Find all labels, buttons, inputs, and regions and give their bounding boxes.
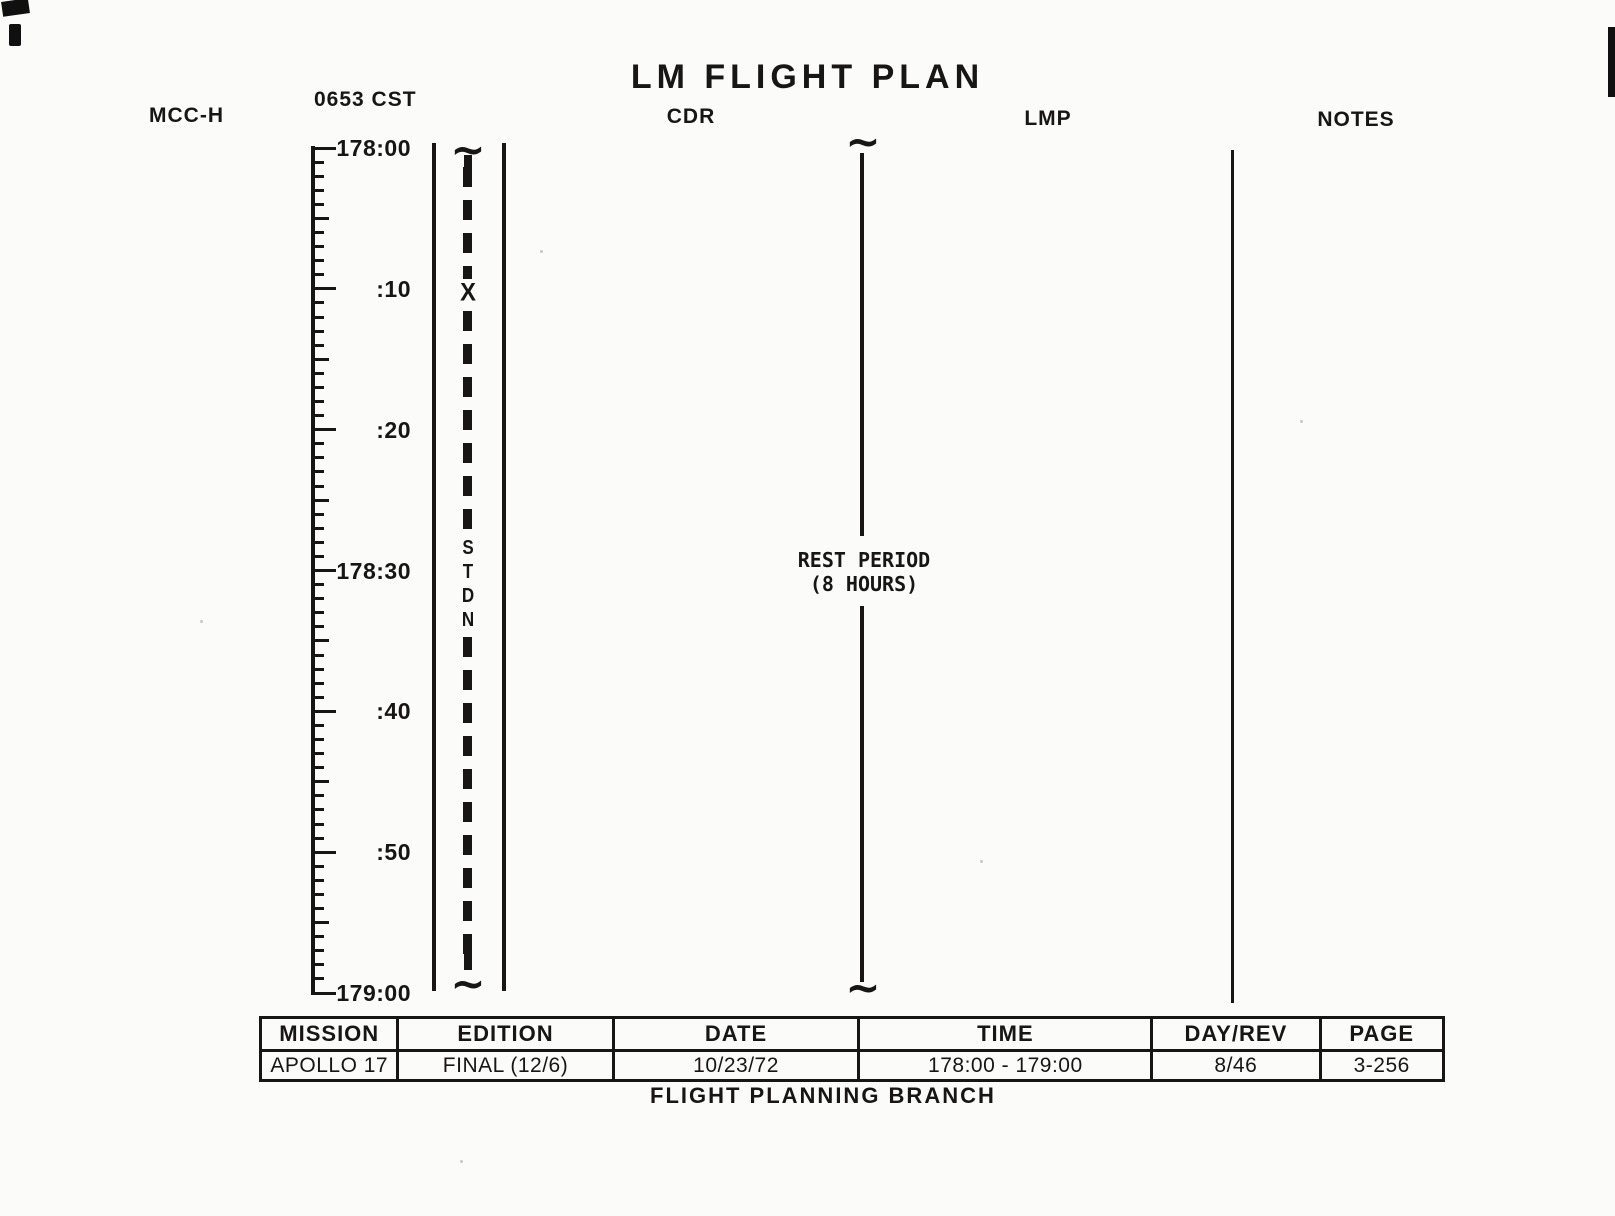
- time-tick: [313, 316, 324, 319]
- time-tick: [313, 330, 324, 333]
- time-tick: [313, 189, 324, 192]
- rest-period-line: [860, 606, 864, 982]
- time-tick: [313, 823, 324, 826]
- time-tick: [313, 738, 324, 741]
- time-tick: [313, 907, 324, 910]
- stdn-coverage-dashed-line: [463, 311, 472, 533]
- stdn-letter: N: [451, 608, 485, 632]
- time-tick: [313, 203, 324, 206]
- time-scale-label: :50: [308, 839, 411, 866]
- table-header-dayrev: DAY/REV: [1153, 1019, 1321, 1052]
- timescale-right-line: [432, 143, 436, 991]
- stdn-x-marker: X: [449, 279, 487, 308]
- cdr-column-line: [502, 143, 506, 991]
- stdn-letter: S: [451, 536, 485, 560]
- time-tick: [313, 541, 324, 544]
- stdn-coverage-dashed-line: [463, 167, 472, 279]
- time-scale-label: 178:30: [308, 558, 411, 585]
- rest-period-label: REST PERIOD (8 HOURS): [714, 549, 1014, 596]
- time-tick: [313, 935, 324, 938]
- time-tick: [313, 231, 324, 234]
- time-tick: [313, 682, 324, 685]
- continuation-squiggle-icon: ~: [833, 967, 893, 1009]
- stdn-coverage-dashed-line: [463, 637, 472, 959]
- time-tick: [313, 372, 324, 375]
- time-tick: [313, 668, 324, 671]
- lmp-column-header: LMP: [998, 107, 1098, 131]
- time-tick: [313, 513, 324, 516]
- time-scale-label: 179:00: [308, 980, 411, 1007]
- table-value-mission: APOLLO 17: [262, 1052, 399, 1079]
- time-tick: [313, 625, 324, 628]
- cst-time-label: 0653 CST: [314, 88, 417, 112]
- table-header-time: TIME: [860, 1019, 1153, 1052]
- time-tick: [313, 175, 324, 178]
- time-tick: [313, 245, 324, 248]
- squiggle-stub: [464, 155, 472, 169]
- time-tick: [313, 456, 324, 459]
- table-value-edition: FINAL (12/6): [399, 1052, 614, 1079]
- stdn-letter: T: [451, 560, 485, 584]
- time-tick: [313, 879, 324, 882]
- time-tick: [313, 344, 324, 347]
- time-tick: [313, 485, 324, 488]
- time-tick: [313, 259, 324, 262]
- lm-flight-plan-page: LM FLIGHT PLAN MCC-H 0653 CST CDR LMP NO…: [0, 0, 1615, 1216]
- rest-period-line: [860, 153, 864, 536]
- time-tick: [313, 654, 324, 657]
- scan-speck: [1300, 420, 1303, 423]
- table-header-edition: EDITION: [399, 1019, 614, 1052]
- time-tick: [313, 470, 324, 473]
- time-tick: [313, 499, 329, 502]
- table-value-time: 178:00 - 179:00: [860, 1052, 1153, 1079]
- mcc-h-label: MCC-H: [149, 104, 224, 128]
- time-tick: [313, 527, 324, 530]
- scan-speck: [200, 620, 203, 623]
- time-tick: [313, 949, 324, 952]
- time-scale-label: :40: [308, 698, 411, 725]
- table-header-page: PAGE: [1322, 1019, 1442, 1052]
- flight-planning-branch-caption: FLIGHT PLANNING BRANCH: [650, 1083, 996, 1109]
- scan-speck: [460, 1160, 463, 1163]
- time-tick: [313, 217, 329, 220]
- table-value-page: 3-256: [1322, 1052, 1442, 1079]
- scan-artifact: [1, 0, 30, 17]
- squiggle-stub: [464, 952, 472, 970]
- time-tick: [313, 766, 324, 769]
- time-tick: [313, 893, 324, 896]
- table-value-dayrev: 8/46: [1153, 1052, 1321, 1079]
- time-tick: [313, 597, 324, 600]
- page-title: LM FLIGHT PLAN: [0, 58, 1615, 97]
- time-scale-label: 178:00: [308, 135, 411, 162]
- scan-speck: [980, 860, 983, 863]
- time-tick: [313, 780, 329, 783]
- time-scale-label: :10: [308, 276, 411, 303]
- rest-period-label-line2: (8 HOURS): [714, 573, 1014, 597]
- time-tick: [313, 639, 329, 642]
- stdn-label: S T D N: [451, 536, 485, 632]
- table-header-mission: MISSION: [262, 1019, 399, 1052]
- lmp-notes-divider-line: [1231, 150, 1234, 1003]
- time-tick: [313, 611, 324, 614]
- time-tick: [313, 808, 324, 811]
- scan-speck: [540, 250, 543, 253]
- time-tick: [313, 358, 329, 361]
- time-tick: [313, 386, 324, 389]
- time-tick: [313, 794, 324, 797]
- rest-period-label-line1: REST PERIOD: [714, 549, 1014, 573]
- time-tick: [313, 921, 329, 924]
- table-header-date: DATE: [615, 1019, 861, 1052]
- stdn-letter: D: [451, 584, 485, 608]
- mission-data-table: MISSION EDITION DATE TIME DAY/REV PAGE A…: [259, 1016, 1445, 1082]
- scan-artifact: [1608, 27, 1615, 97]
- time-tick: [313, 752, 324, 755]
- cdr-column-header: CDR: [641, 105, 741, 129]
- table-value-date: 10/23/72: [615, 1052, 861, 1079]
- time-scale-label: :20: [308, 417, 411, 444]
- notes-column-header: NOTES: [1306, 108, 1406, 132]
- time-tick: [313, 963, 324, 966]
- time-tick: [313, 400, 324, 403]
- scan-artifact: [9, 24, 21, 46]
